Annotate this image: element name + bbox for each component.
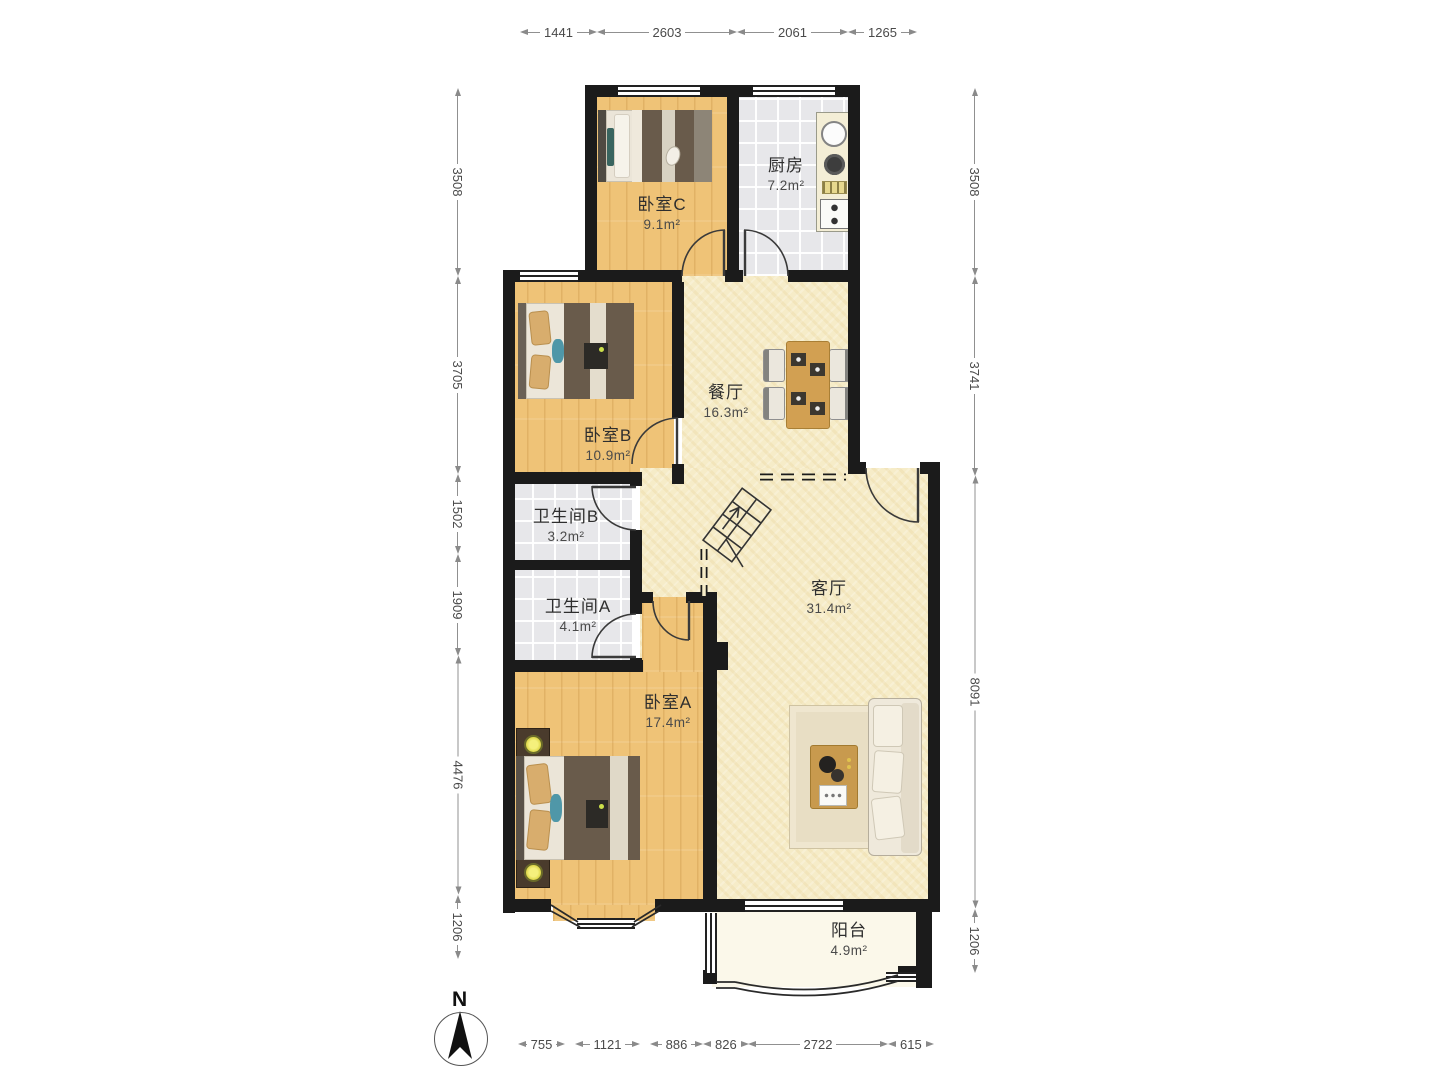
bay-window-lines — [551, 905, 661, 927]
dimension: 4476 — [452, 656, 466, 895]
dimension: 2603 — [597, 25, 737, 39]
dimension: 1502 — [451, 474, 465, 554]
room-label-kitchen: 厨房 7.2m² — [767, 157, 804, 194]
room-area: 10.9m² — [584, 449, 632, 464]
door-arc-kitchen — [744, 230, 788, 276]
dimension: 2722 — [748, 1037, 888, 1051]
dimension: 2061 — [737, 25, 848, 39]
room-label-dining: 餐厅 16.3m² — [703, 384, 748, 421]
dimension: 1121 — [575, 1037, 640, 1051]
dimension: 3508 — [451, 88, 465, 276]
compass-icon — [434, 1012, 488, 1066]
room-area: 9.1m² — [637, 218, 686, 233]
door-arc-entrance — [866, 468, 919, 522]
dimension: 8091 — [969, 476, 983, 909]
dimension: 1265 — [848, 25, 917, 39]
room-label-bedroom-c: 卧室C 9.1m² — [637, 196, 686, 233]
dimension: 3508 — [968, 88, 982, 276]
room-label-bedroom-b: 卧室B 10.9m² — [584, 427, 632, 464]
room-name: 卧室B — [584, 427, 632, 446]
room-label-bath-a: 卫生间A 4.1m² — [545, 598, 611, 635]
room-name: 卧室A — [644, 694, 692, 713]
plan-overlay — [0, 0, 1440, 1080]
room-label-bath-b: 卫生间B 3.2m² — [533, 508, 599, 545]
room-name: 卫生间A — [545, 598, 611, 617]
room-label-living: 客厅 31.4m² — [806, 580, 851, 617]
dimension: 1206 — [451, 895, 465, 959]
dimension: 3705 — [451, 276, 465, 474]
stairs-icon — [703, 488, 780, 569]
dimension: 3741 — [968, 276, 982, 476]
room-area: 7.2m² — [767, 179, 804, 194]
dimension: 1441 — [520, 25, 597, 39]
room-area: 17.4m² — [644, 716, 692, 731]
dimension: 1909 — [451, 554, 465, 656]
dimension: 886 — [650, 1037, 703, 1051]
room-area: 16.3m² — [703, 406, 748, 421]
door-arc-bedroom-b — [632, 418, 678, 464]
room-name: 客厅 — [806, 580, 851, 599]
dimension: 1206 — [968, 909, 982, 973]
room-area: 31.4m² — [806, 602, 851, 617]
room-name: 厨房 — [767, 157, 804, 176]
room-area: 4.1m² — [545, 620, 611, 635]
room-name: 卧室C — [637, 196, 686, 215]
balcony-bow-window — [716, 975, 898, 996]
dimension: 755 — [518, 1037, 565, 1051]
room-area: 4.9m² — [830, 944, 867, 959]
room-area: 3.2m² — [533, 530, 599, 545]
dimension: 826 — [703, 1037, 748, 1051]
room-name: 阳台 — [830, 922, 867, 941]
room-name: 卫生间B — [533, 508, 599, 527]
dimension: 615 — [888, 1037, 922, 1051]
room-label-balcony: 阳台 4.9m² — [830, 922, 867, 959]
door-arc-bedroom-c — [682, 230, 725, 276]
door-arc-bedroom-a — [653, 601, 689, 640]
room-label-bedroom-a: 卧室A 17.4m² — [644, 694, 692, 731]
floor-plan: 卧室C 9.1m² 厨房 7.2m² 卧室B 10.9m² 餐厅 16.3m² … — [0, 0, 1440, 1080]
compass-north-label: N — [452, 988, 467, 1012]
door-arcs — [592, 230, 919, 658]
room-name: 餐厅 — [703, 384, 748, 403]
